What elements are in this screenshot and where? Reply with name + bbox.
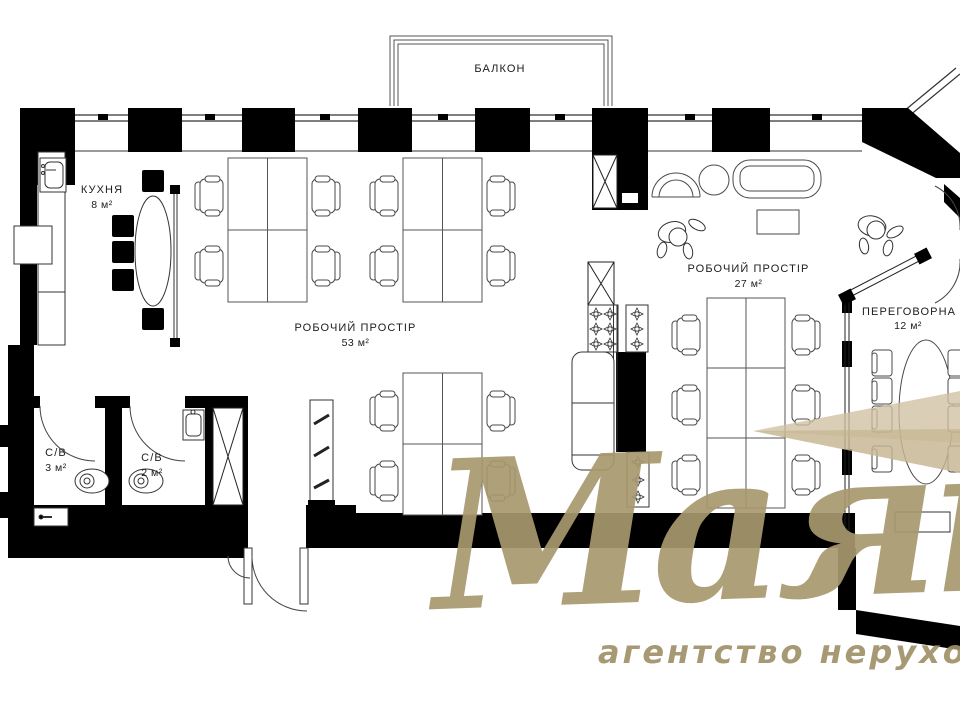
shaft-wc (213, 408, 243, 505)
wc-sink-icon (183, 410, 204, 440)
armchair (652, 173, 700, 197)
kitchen-label: КУХНЯ 8 м² (60, 183, 144, 212)
glass-cap-1 (838, 288, 856, 305)
kitchen-partition-wall (174, 190, 177, 345)
coffee-table (757, 210, 799, 234)
sofa (733, 160, 821, 198)
round-side-table (699, 165, 729, 195)
wc-1-label: С/В 3 м² (28, 446, 84, 475)
coat-rack (308, 400, 335, 513)
brand-tagline: агентство нерухомості (598, 633, 960, 671)
person-figure-1 (656, 217, 707, 260)
wc-2-label: С/В 2 м² (126, 451, 178, 480)
desk-cluster-1 (228, 158, 307, 302)
kitchen (14, 152, 180, 347)
meeting-room-label: ПЕРЕГОВОРНА КІМНАТА (862, 306, 960, 318)
utility-sink-icon (34, 508, 68, 526)
door-arc (252, 556, 307, 611)
meeting-room-area: 12 м² (878, 320, 938, 332)
workspace-second-label: РОБОЧИЙ ПРОСТІР 27 м² (686, 262, 811, 291)
planter-right (626, 305, 648, 352)
brand-watermark: Маяк (429, 410, 960, 640)
floor-plan-page: БАЛКОН КУХНЯ 8 м² РОБОЧИЙ ПРОСТІР 53 м² … (0, 0, 960, 720)
dining-table (135, 196, 171, 306)
shaft-middle (588, 262, 614, 305)
balcony-label: БАЛКОН (440, 62, 560, 77)
desk-cluster-2 (403, 158, 482, 302)
workspace-main-label: РОБОЧИЙ ПРОСТІР 53 м² (278, 321, 433, 350)
person-figure-2 (856, 213, 905, 257)
